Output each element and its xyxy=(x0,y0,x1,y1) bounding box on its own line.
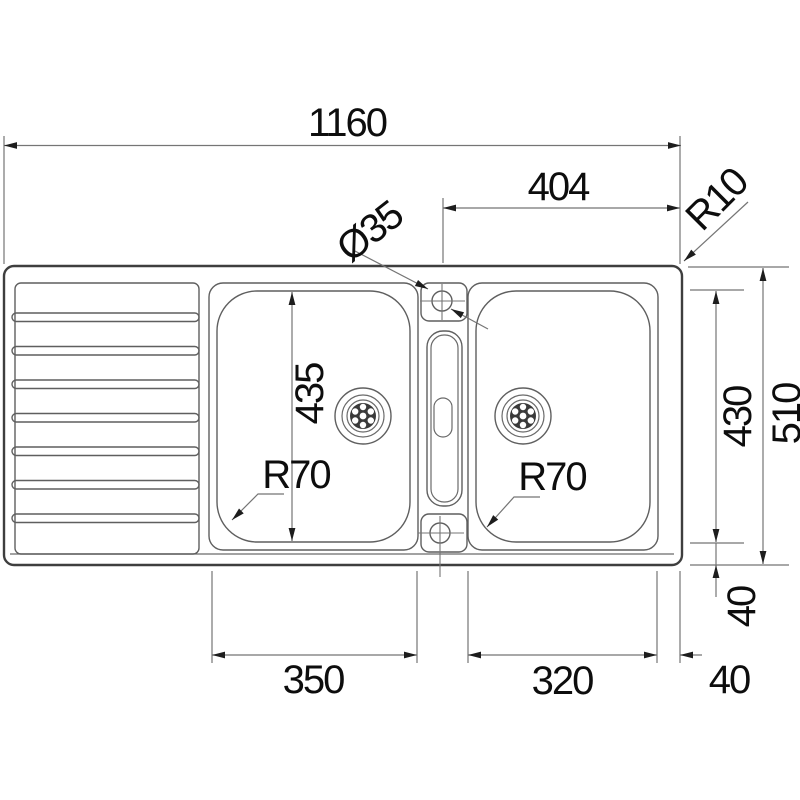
drainboard-rib xyxy=(12,447,199,456)
sink-outer-edge xyxy=(4,266,682,565)
leader-line xyxy=(232,494,284,520)
arrowhead xyxy=(443,205,456,212)
callout-corner-radius: R10 xyxy=(677,160,756,264)
divider-channel-outer xyxy=(427,331,462,506)
callout-tap-hole-diameter: Ø35 xyxy=(329,193,488,329)
dim-overall-depth-label: 510 xyxy=(765,383,800,444)
left-drain xyxy=(335,388,391,444)
dim-right-bowl-width: 320 xyxy=(468,571,657,703)
drainboard-rib xyxy=(12,380,199,389)
drainboard-rib xyxy=(12,313,199,322)
arrowhead xyxy=(415,280,430,292)
arrowhead xyxy=(468,652,481,659)
dim-right-bowl-width-label: 320 xyxy=(532,659,593,703)
tap-hole-crosshair xyxy=(418,516,464,577)
arrowhead xyxy=(760,268,767,281)
arrowhead xyxy=(449,306,464,318)
dim-right-bowl-depth-label: 430 xyxy=(716,386,760,447)
extension-lines xyxy=(212,571,417,663)
arrowhead xyxy=(289,528,296,541)
dim-right-bowl-depth: 430 xyxy=(690,290,760,543)
right-bowl xyxy=(468,283,658,550)
drainboard-rib xyxy=(12,481,199,490)
arrowhead xyxy=(212,652,225,659)
arrowhead xyxy=(289,292,296,305)
arrowhead xyxy=(760,551,767,564)
arrowhead xyxy=(680,652,693,659)
divider-channel-inner xyxy=(431,335,458,502)
right-drain xyxy=(495,388,551,444)
arrowhead xyxy=(713,291,720,304)
drainboard xyxy=(12,283,199,554)
extension-lines xyxy=(468,571,657,663)
drainboard-rib xyxy=(12,514,199,523)
callout-left-bowl-radius: R70 xyxy=(230,453,331,522)
dim-overall-width-label: 1160 xyxy=(308,101,387,145)
dim-tap-to-edge: 404 xyxy=(443,165,680,263)
dim-left-bowl-width-label: 350 xyxy=(283,658,344,702)
drainboard-rib xyxy=(12,414,199,423)
arrowhead xyxy=(713,529,720,542)
right-bowl-radius-label: R70 xyxy=(518,455,586,499)
dim-left-bowl-depth-label: 435 xyxy=(288,363,332,424)
center-divider xyxy=(421,283,467,552)
arrowhead xyxy=(644,652,657,659)
callout-right-bowl-radius: R70 xyxy=(484,455,586,529)
sink-technical-drawing: 1160 404 R10 Ø35 435 R70 R70 xyxy=(0,0,800,800)
dim-tap-to-edge-label: 404 xyxy=(528,165,590,209)
sink-outline xyxy=(4,266,682,565)
tap-hole-diameter-label: Ø35 xyxy=(329,193,412,271)
arrowhead xyxy=(668,142,681,149)
overflow-slot xyxy=(434,398,452,437)
drainboard-rib xyxy=(12,347,199,356)
dim-bowl-to-front-edge: 40 xyxy=(713,543,764,627)
dim-left-bowl-depth: 435 xyxy=(288,292,332,541)
dim-bowl-to-right-edge-label: 40 xyxy=(709,658,750,702)
leader-line xyxy=(487,497,540,527)
tap-hole-bottom xyxy=(418,516,464,577)
arrowhead xyxy=(404,652,417,659)
left-bowl-radius-label: R70 xyxy=(262,453,330,497)
dim-bowl-to-front-edge-label: 40 xyxy=(720,586,764,627)
corner-radius-label: R10 xyxy=(677,160,756,239)
right-bowl-rim xyxy=(468,283,658,550)
arrowhead xyxy=(4,142,17,149)
technical-drawing-canvas: 1160 404 R10 Ø35 435 R70 R70 xyxy=(0,0,800,800)
dim-left-bowl-width: 350 xyxy=(212,571,417,702)
arrowhead xyxy=(713,565,720,578)
